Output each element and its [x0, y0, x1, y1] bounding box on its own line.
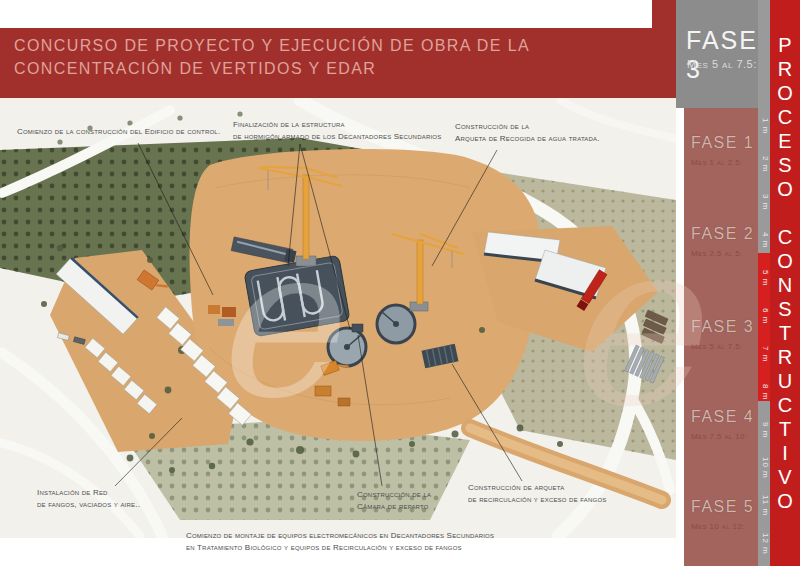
month-label: 3 m — [758, 190, 770, 214]
phase-name: FASE 4 — [691, 408, 757, 426]
phase-list: FASE 1 Mes 1 al 2.5: FASE 2 Mes 2.5 al 5… — [684, 108, 758, 566]
annotation-distribution-chamber: Construcción de la Cámara de reparto — [357, 489, 431, 513]
annotation-text: de fangos, vaciados y aire.. — [37, 499, 140, 511]
main-work-pad — [190, 149, 541, 441]
current-phase-period: Mes 5 al 7.5: — [687, 58, 757, 70]
phase-period: Mes 1 al 2.5: — [691, 158, 757, 167]
annotation-secondary-decanters: Finalización de la estructura de hormigó… — [233, 119, 441, 143]
phase-period: Mes 5 al 7.5: — [691, 342, 757, 351]
month-label: 9 m — [758, 418, 770, 442]
phase-period: Mes 2.5 al 5: — [691, 249, 757, 258]
month-label: 12 m — [758, 532, 770, 556]
annotation-text: Comienzo de la construcción del Edificio… — [17, 126, 220, 138]
title-line-2: CONCENTRACIÓN DE VERTIDOS Y EDAR — [14, 60, 376, 78]
month-label: 10 m — [758, 456, 770, 480]
annotation-sludge-network: Instalación de Red de fangos, vaciados y… — [37, 487, 140, 511]
annotation-text: Comienzo de montaje de equipos electrome… — [186, 530, 494, 542]
month-label: 11 m — [758, 494, 770, 518]
current-phase-header: FASE 3 Mes 5 al 7.5: — [676, 0, 758, 108]
secondary-clarifier-2 — [377, 305, 415, 343]
annotation-text: de recirculación y exceso de fangos — [468, 494, 606, 506]
process-title-vertical: PROCESO CONSTRUCTIVO — [773, 34, 796, 514]
phase-item-5: FASE 5 Mes 10 al 12: — [691, 498, 757, 531]
month-label: 7 m — [758, 342, 770, 366]
secondary-clarifier-1 — [328, 328, 366, 366]
site-plan-rendering — [0, 98, 676, 538]
phase-period: Mes 7.5 al 10: — [691, 432, 757, 441]
annotation-text: Instalación de Red — [37, 487, 140, 499]
current-phase-name: FASE 3 — [686, 26, 758, 84]
annotation-text: Cámara de reparto — [357, 501, 431, 513]
process-title-bar: PROCESO CONSTRUCTIVO — [770, 0, 800, 566]
phase-name: FASE 3 — [691, 318, 757, 336]
slide: e e CONCURSO DE PROYECTO Y EJECUCIÓN DE … — [0, 0, 800, 566]
month-label: 8 m — [758, 380, 770, 404]
material-crate-2 — [338, 398, 350, 406]
annotation-text: en Tratamiento Biológico y equipos de Re… — [186, 542, 494, 554]
annotation-treated-water-chamber: Construcción de la Arqueta de Recogida d… — [455, 121, 600, 145]
annotation-text: de hormigón armado de los Decantadores S… — [233, 131, 441, 143]
phase-name: FASE 5 — [691, 498, 757, 516]
phase-item-1: FASE 1 Mes 1 al 2.5: — [691, 134, 757, 167]
phase-item-3: FASE 3 Mes 5 al 7.5: — [691, 318, 757, 351]
phase-item-4: FASE 4 Mes 7.5 al 10: — [691, 408, 757, 441]
annotation-bottom-note: Comienzo de montaje de equipos electrome… — [186, 530, 494, 554]
phase-name: FASE 1 — [691, 134, 757, 152]
material-crate-1 — [315, 386, 331, 396]
phase-period: Mes 10 al 12: — [691, 522, 757, 531]
month-label: 6 m — [758, 304, 770, 328]
annotation-text: Finalización de la estructura — [233, 119, 441, 131]
month-timeline: 1 m 2 m 3 m 4 m 5 m 6 m 7 m 8 m 9 m 10 m… — [758, 0, 770, 566]
annotation-text: Construcción de arqueta — [468, 482, 606, 494]
distribution-chamber-box — [352, 324, 363, 332]
annotation-text: Arqueta de Recogida de agua tratada. — [455, 133, 600, 145]
banner-side-tab — [652, 0, 676, 98]
phase-item-2: FASE 2 Mes 2.5 al 5: — [691, 225, 757, 258]
month-label: 5 m — [758, 266, 770, 290]
month-label: 4 m — [758, 228, 770, 252]
annotation-text: Construcción de la — [455, 121, 600, 133]
month-label: 2 m — [758, 152, 770, 176]
title-line-1: CONCURSO DE PROYECTO Y EJECUCIÓN DE OBRA… — [14, 37, 530, 55]
annotation-recirculation-chamber: Construcción de arqueta de recirculación… — [468, 482, 606, 506]
annotation-control-building: Comienzo de la construcción del Edificio… — [17, 126, 220, 138]
phase-name: FASE 2 — [691, 225, 757, 243]
annotation-text: Construcción de la — [357, 489, 431, 501]
title-banner: CONCURSO DE PROYECTO Y EJECUCIÓN DE OBRA… — [0, 28, 652, 98]
month-label: 1 m — [758, 114, 770, 138]
